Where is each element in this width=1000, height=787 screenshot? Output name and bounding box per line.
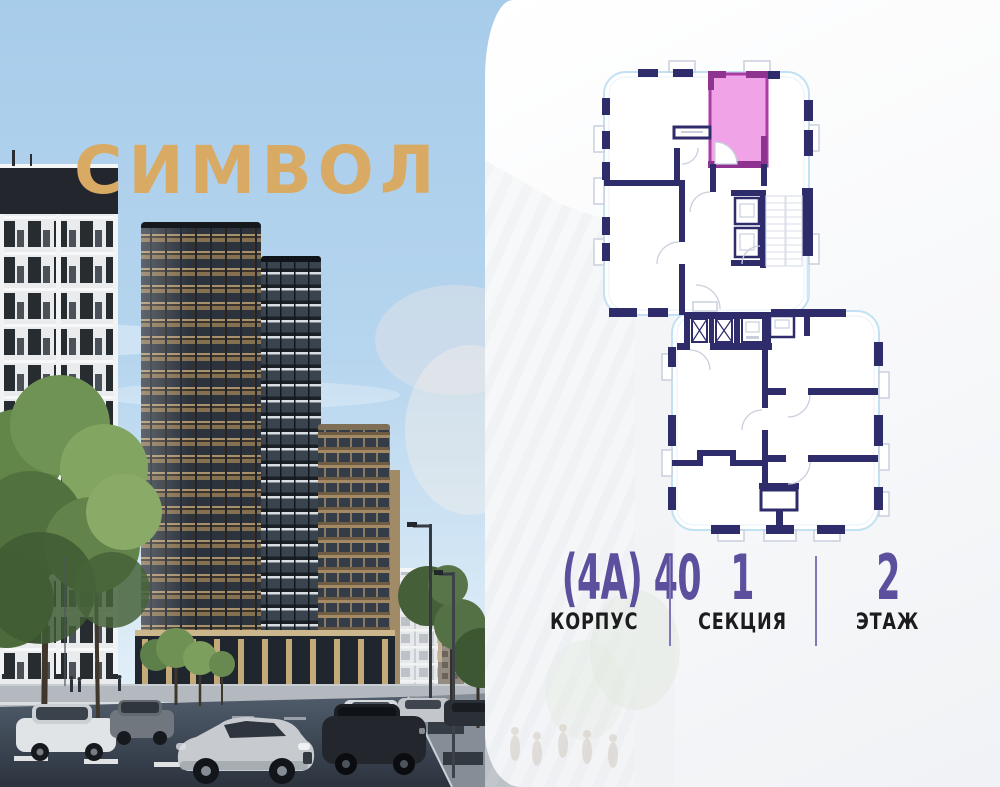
floor-plan [591, 56, 899, 561]
screenshot-root: { "brand": { "name": "СИМВОЛ", "logo_col… [0, 0, 1000, 787]
selected-unit[interactable] [708, 71, 768, 168]
info-building: (4А) 40 КОРПУС [507, 548, 681, 635]
floor-label: ЭТАЖ [856, 610, 919, 635]
unit-info: (4А) 40 КОРПУС 1 СЕКЦИЯ 2 ЭТАЖ [485, 548, 1000, 658]
info-section: 1 СЕКЦИЯ [669, 548, 815, 635]
floor-value: 2 [876, 548, 900, 608]
apartment-info-card: (4А) 40 КОРПУС 1 СЕКЦИЯ 2 ЭТАЖ [485, 0, 1000, 787]
info-floor: 2 ЭТАЖ [815, 548, 961, 635]
section-value: 1 [730, 548, 754, 608]
section-label: СЕКЦИЯ [698, 610, 787, 635]
brand-logo: СИМВОЛ [74, 132, 434, 209]
building-label: КОРПУС [550, 610, 638, 635]
